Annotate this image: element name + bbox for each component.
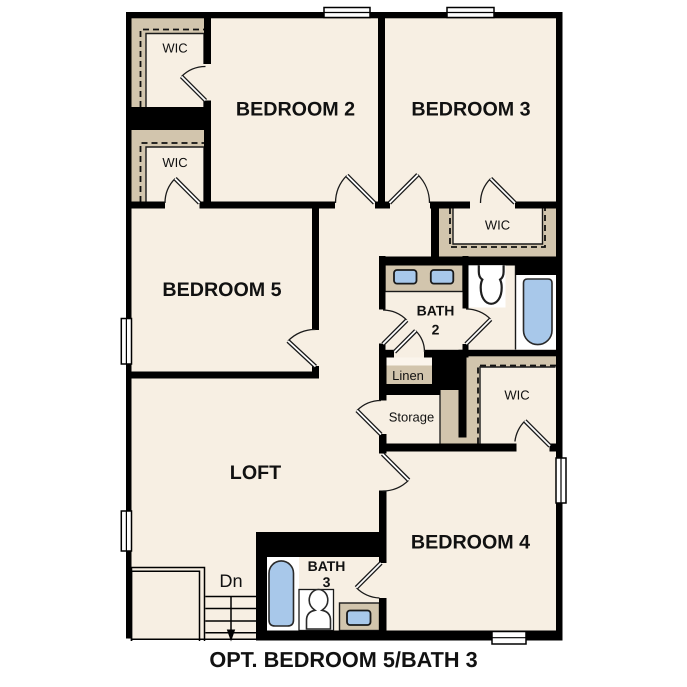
- svg-text:BEDROOM 5: BEDROOM 5: [162, 279, 281, 301]
- svg-text:Linen: Linen: [392, 368, 424, 383]
- svg-text:WIC: WIC: [504, 388, 529, 403]
- svg-text:BATH: BATH: [308, 558, 346, 574]
- svg-text:BEDROOM 3: BEDROOM 3: [411, 99, 530, 121]
- svg-text:Dn: Dn: [219, 571, 242, 591]
- svg-text:Storage: Storage: [389, 410, 435, 425]
- svg-text:2: 2: [432, 322, 440, 338]
- svg-text:3: 3: [323, 574, 331, 590]
- svg-text:BEDROOM 4: BEDROOM 4: [411, 532, 530, 554]
- svg-text:WIC: WIC: [162, 41, 187, 56]
- svg-text:BEDROOM 2: BEDROOM 2: [236, 99, 355, 121]
- svg-text:WIC: WIC: [485, 218, 510, 233]
- svg-text:LOFT: LOFT: [230, 462, 281, 484]
- svg-text:WIC: WIC: [162, 155, 187, 170]
- svg-text:BATH: BATH: [417, 303, 455, 319]
- svg-text:OPT. BEDROOM 5/BATH 3: OPT. BEDROOM 5/BATH 3: [209, 647, 477, 672]
